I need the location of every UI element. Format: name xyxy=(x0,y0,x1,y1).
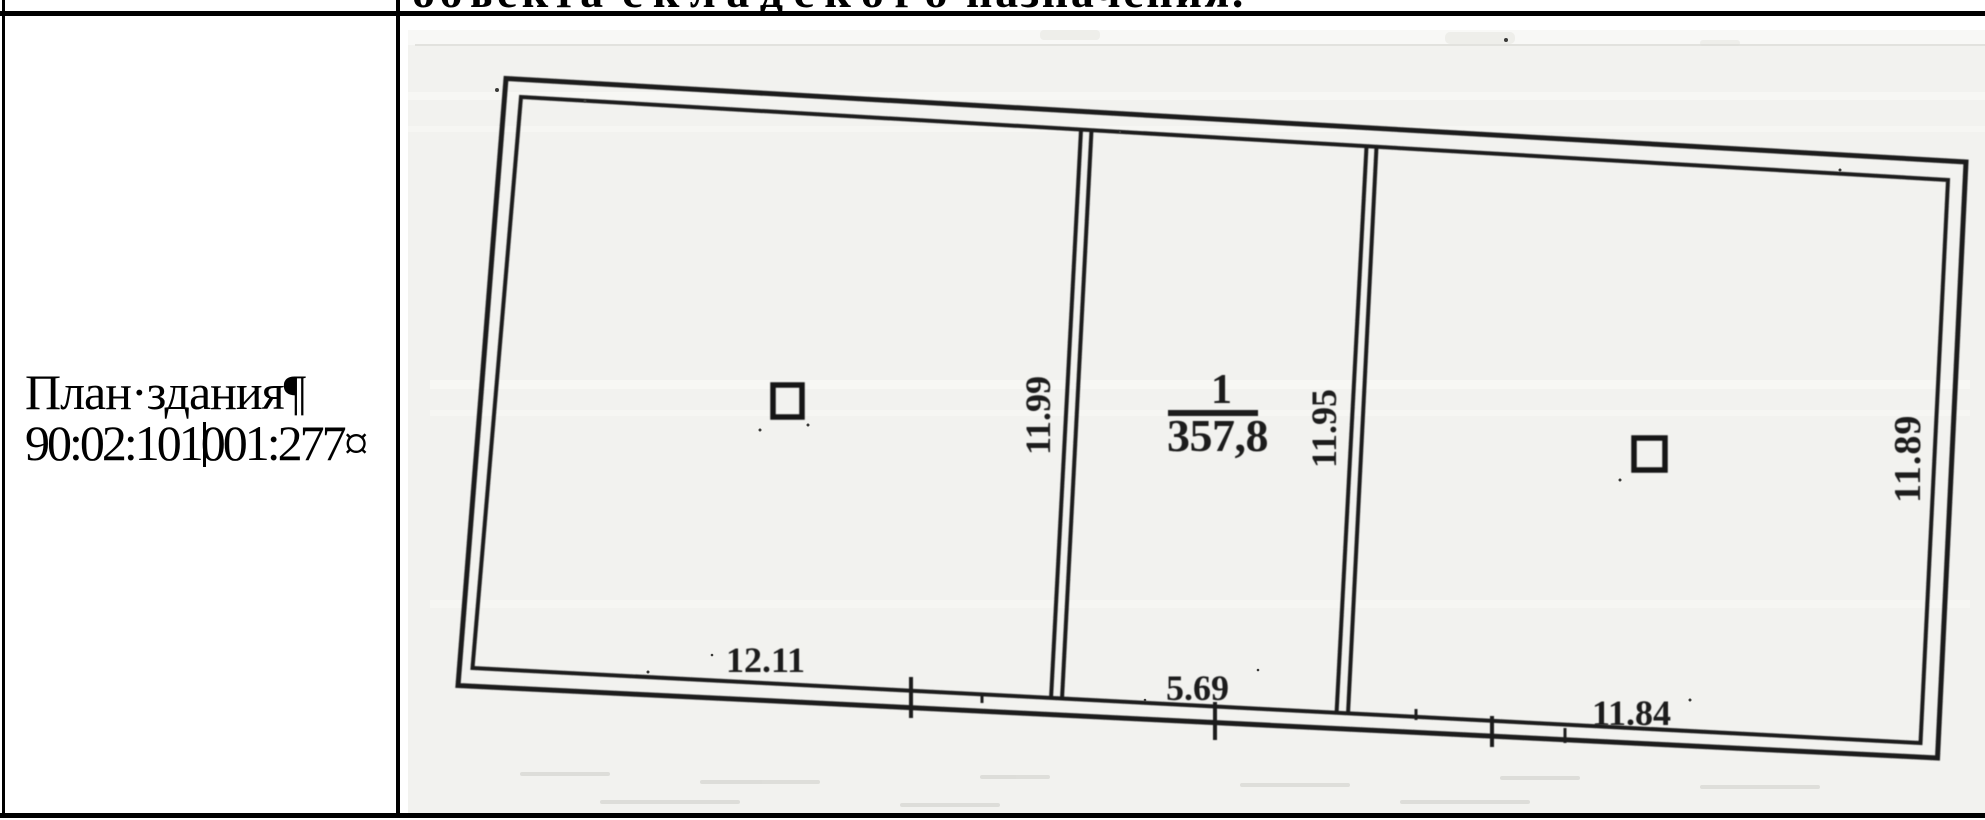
svg-text:11.89: 11.89 xyxy=(1887,415,1929,503)
svg-text:11.84: 11.84 xyxy=(1592,693,1671,733)
svg-text:5.69: 5.69 xyxy=(1166,668,1229,708)
svg-text:11.99: 11.99 xyxy=(1018,376,1058,455)
svg-text:11.95: 11.95 xyxy=(1304,389,1344,468)
svg-text:357,8: 357,8 xyxy=(1167,410,1268,461)
svg-text:1: 1 xyxy=(1211,367,1232,413)
svg-text:12.11: 12.11 xyxy=(726,640,805,680)
